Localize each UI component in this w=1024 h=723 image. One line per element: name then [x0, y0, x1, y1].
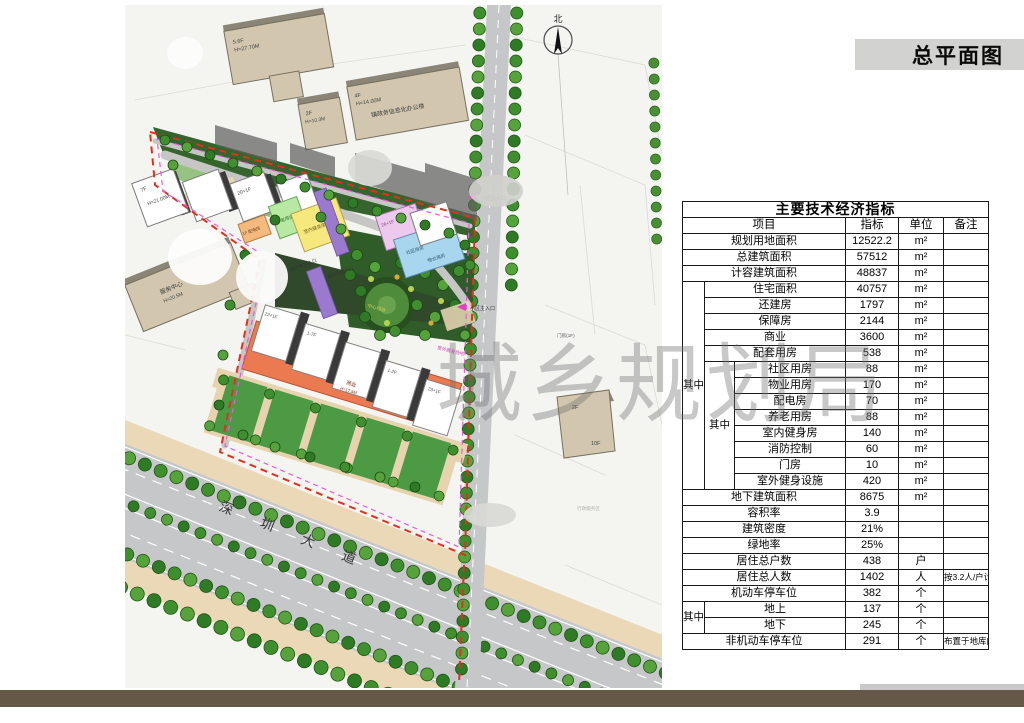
row-note	[944, 426, 989, 442]
row-value: 88	[846, 410, 899, 426]
row-label: 非机动车停车位	[683, 634, 846, 650]
row-value: 420	[846, 474, 899, 490]
row-unit: m²	[899, 346, 944, 362]
row-value: 8675	[846, 490, 899, 506]
svg-text:10F: 10F	[591, 441, 601, 447]
row-unit	[899, 506, 944, 522]
row-value: 25%	[846, 538, 899, 554]
row-note	[944, 410, 989, 426]
row-note	[944, 538, 989, 554]
table-title: 主要技术经济指标	[683, 202, 989, 218]
entrance-main-label: 小区主入口	[470, 305, 495, 312]
row-label: 物业用房	[735, 378, 846, 394]
row-label: 地下	[705, 618, 846, 634]
row-note	[944, 442, 989, 458]
row-value: 70	[846, 394, 899, 410]
row-value: 438	[846, 554, 899, 570]
row-value: 140	[846, 426, 899, 442]
row-label: 保障房	[705, 314, 846, 330]
row-unit: m²	[899, 490, 944, 506]
row-note: 布置于地库内	[944, 634, 989, 650]
row-note: 按3.2人/户计算	[944, 570, 989, 586]
row-note	[944, 618, 989, 634]
indicators-table: 主要技术经济指标项目指标单位备注规划用地面积12522.2m²总建筑面积5751…	[682, 201, 989, 650]
drawing-sheet: 深圳大道 5.6F H=27.70M 4F H=14.00M 镇政务信息化办公楼	[0, 0, 1024, 723]
row-label: 居住总户数	[683, 554, 846, 570]
row-label: 室外健身设施	[735, 474, 846, 490]
row-value: 291	[846, 634, 899, 650]
row-label: 社区用房	[735, 362, 846, 378]
row-label: 总建筑面积	[683, 250, 846, 266]
row-value: 2144	[846, 314, 899, 330]
row-label: 计容建筑面积	[683, 266, 846, 282]
row-value: 60	[846, 442, 899, 458]
row-label: 地下建筑面积	[683, 490, 846, 506]
row-unit	[899, 538, 944, 554]
header-value: 指标	[846, 218, 899, 234]
row-unit: 个	[899, 618, 944, 634]
header-note: 备注	[944, 218, 989, 234]
row-note	[944, 506, 989, 522]
row-unit: m²	[899, 394, 944, 410]
row-value: 12522.2	[846, 234, 899, 250]
row-value: 137	[846, 602, 899, 618]
row-value: 3.9	[846, 506, 899, 522]
row-value: 57512	[846, 250, 899, 266]
row-note	[944, 554, 989, 570]
row-note	[944, 266, 989, 282]
header-item: 项目	[683, 218, 846, 234]
row-label: 配电房	[735, 394, 846, 410]
row-note	[944, 458, 989, 474]
row-unit: m²	[899, 458, 944, 474]
row-note	[944, 250, 989, 266]
row-unit: 个	[899, 634, 944, 650]
sheet-title: 总平面图	[912, 40, 1004, 70]
row-label: 机动车停车位	[683, 586, 846, 602]
gatehouse-label: 门房(1F)	[557, 332, 575, 339]
row-note	[944, 314, 989, 330]
row-unit: m²	[899, 410, 944, 426]
row-label: 商业	[705, 330, 846, 346]
row-value: 21%	[846, 522, 899, 538]
row-unit: m²	[899, 250, 944, 266]
row-label: 地上	[705, 602, 846, 618]
header-unit: 单位	[899, 218, 944, 234]
row-value: 1797	[846, 298, 899, 314]
row-value: 245	[846, 618, 899, 634]
row-unit: m²	[899, 298, 944, 314]
group-cell: 其中	[683, 282, 705, 490]
row-note	[944, 362, 989, 378]
row-label: 住宅面积	[705, 282, 846, 298]
row-unit: m²	[899, 330, 944, 346]
row-label: 消防控制	[735, 442, 846, 458]
row-note	[944, 586, 989, 602]
row-note	[944, 474, 989, 490]
row-unit: m²	[899, 362, 944, 378]
row-value: 88	[846, 362, 899, 378]
svg-text:2F: 2F	[572, 405, 579, 411]
row-label: 容积率	[683, 506, 846, 522]
row-note	[944, 602, 989, 618]
row-note	[944, 234, 989, 250]
row-note	[944, 522, 989, 538]
row-label: 还建房	[705, 298, 846, 314]
row-value: 3600	[846, 330, 899, 346]
footer-brown-band	[0, 690, 1024, 707]
north-label: 北	[553, 14, 562, 24]
row-note	[944, 298, 989, 314]
row-value: 1402	[846, 570, 899, 586]
row-unit	[899, 522, 944, 538]
row-value: 170	[846, 378, 899, 394]
sheet-title-band: 总平面图	[855, 39, 1024, 70]
row-label: 养老用房	[735, 410, 846, 426]
row-unit: 户	[899, 554, 944, 570]
row-note	[944, 394, 989, 410]
row-unit: m²	[899, 442, 944, 458]
existing-building-southeast: 2F 10F	[557, 390, 615, 458]
row-unit: m²	[899, 282, 944, 298]
row-unit: m²	[899, 378, 944, 394]
row-label: 门房	[735, 458, 846, 474]
row-unit: 个	[899, 602, 944, 618]
row-value: 538	[846, 346, 899, 362]
indicators-table-wrap: 主要技术经济指标项目指标单位备注规划用地面积12522.2m²总建筑面积5751…	[682, 201, 989, 650]
row-label: 建筑密度	[683, 522, 846, 538]
row-label: 室内健身房	[735, 426, 846, 442]
group-cell: 其中	[683, 602, 705, 634]
row-label: 规划用地面积	[683, 234, 846, 250]
row-unit: m²	[899, 266, 944, 282]
row-label: 绿地率	[683, 538, 846, 554]
row-value: 382	[846, 586, 899, 602]
row-unit: 个	[899, 586, 944, 602]
row-note	[944, 490, 989, 506]
row-note	[944, 378, 989, 394]
group-cell: 其中	[705, 362, 735, 490]
row-label: 配套用房	[705, 346, 846, 362]
existing-building-small: 2F H=10.3M	[297, 91, 347, 150]
admin-area-label: 行政服务区	[577, 505, 600, 512]
row-unit: m²	[899, 314, 944, 330]
row-unit: m²	[899, 426, 944, 442]
row-value: 48837	[846, 266, 899, 282]
row-label: 居住总人数	[683, 570, 846, 586]
row-unit: 人	[899, 570, 944, 586]
row-unit: m²	[899, 234, 944, 250]
row-note	[944, 282, 989, 298]
row-value: 40757	[846, 282, 899, 298]
row-value: 10	[846, 458, 899, 474]
row-note	[944, 330, 989, 346]
row-note	[944, 346, 989, 362]
site-plan: 深圳大道 5.6F H=27.70M 4F H=14.00M 镇政务信息化办公楼	[125, 5, 662, 688]
row-unit: m²	[899, 474, 944, 490]
